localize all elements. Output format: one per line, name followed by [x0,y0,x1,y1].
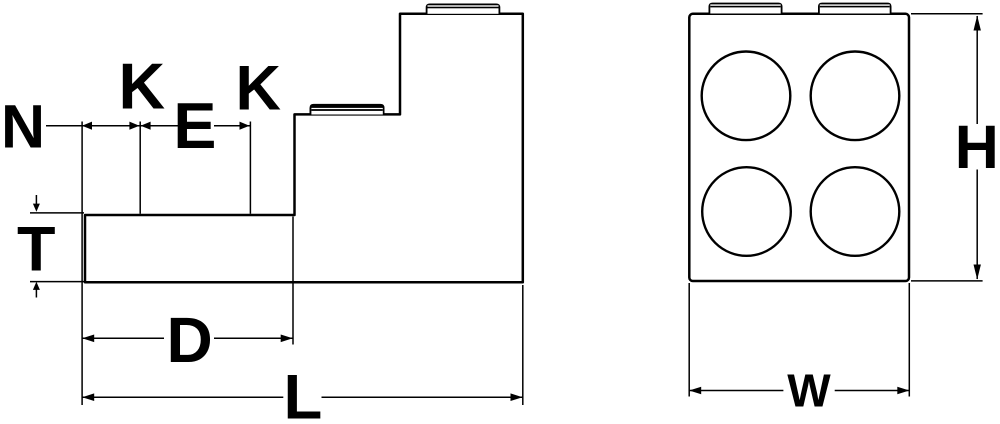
svg-text:K: K [119,51,166,123]
svg-text:D: D [166,304,212,376]
svg-text:H: H [955,113,999,181]
svg-text:L: L [284,363,323,424]
svg-text:W: W [787,365,831,417]
svg-text:N: N [1,93,45,161]
svg-text:K: K [236,54,282,124]
svg-text:E: E [173,90,216,162]
svg-text:T: T [17,215,55,285]
